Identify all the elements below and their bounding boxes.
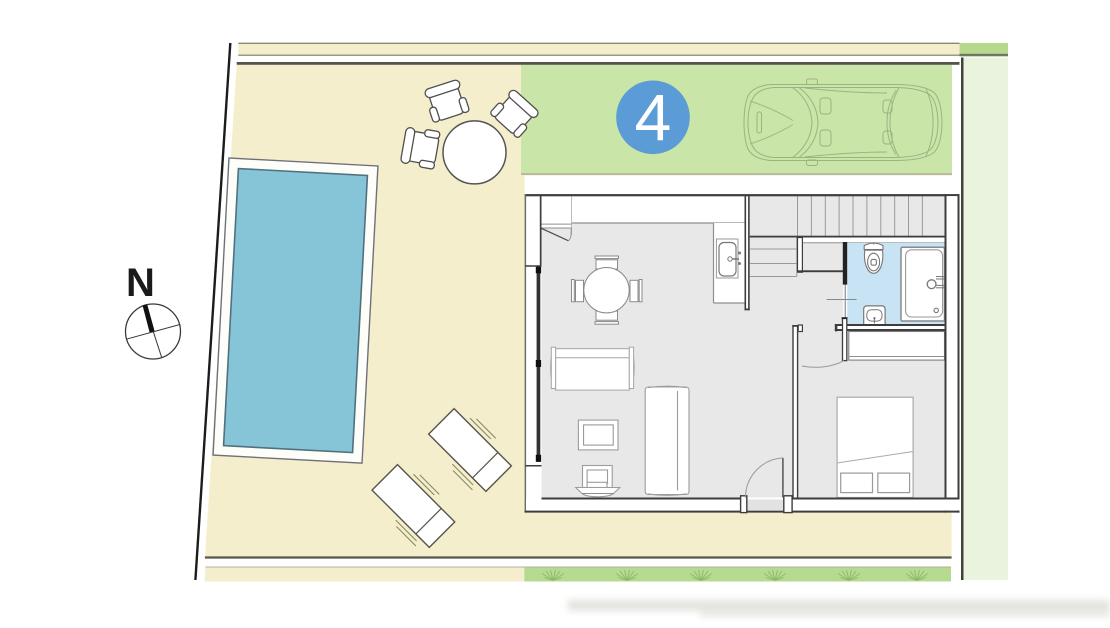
svg-text:4: 4	[635, 81, 672, 155]
svg-text:N: N	[126, 261, 155, 305]
